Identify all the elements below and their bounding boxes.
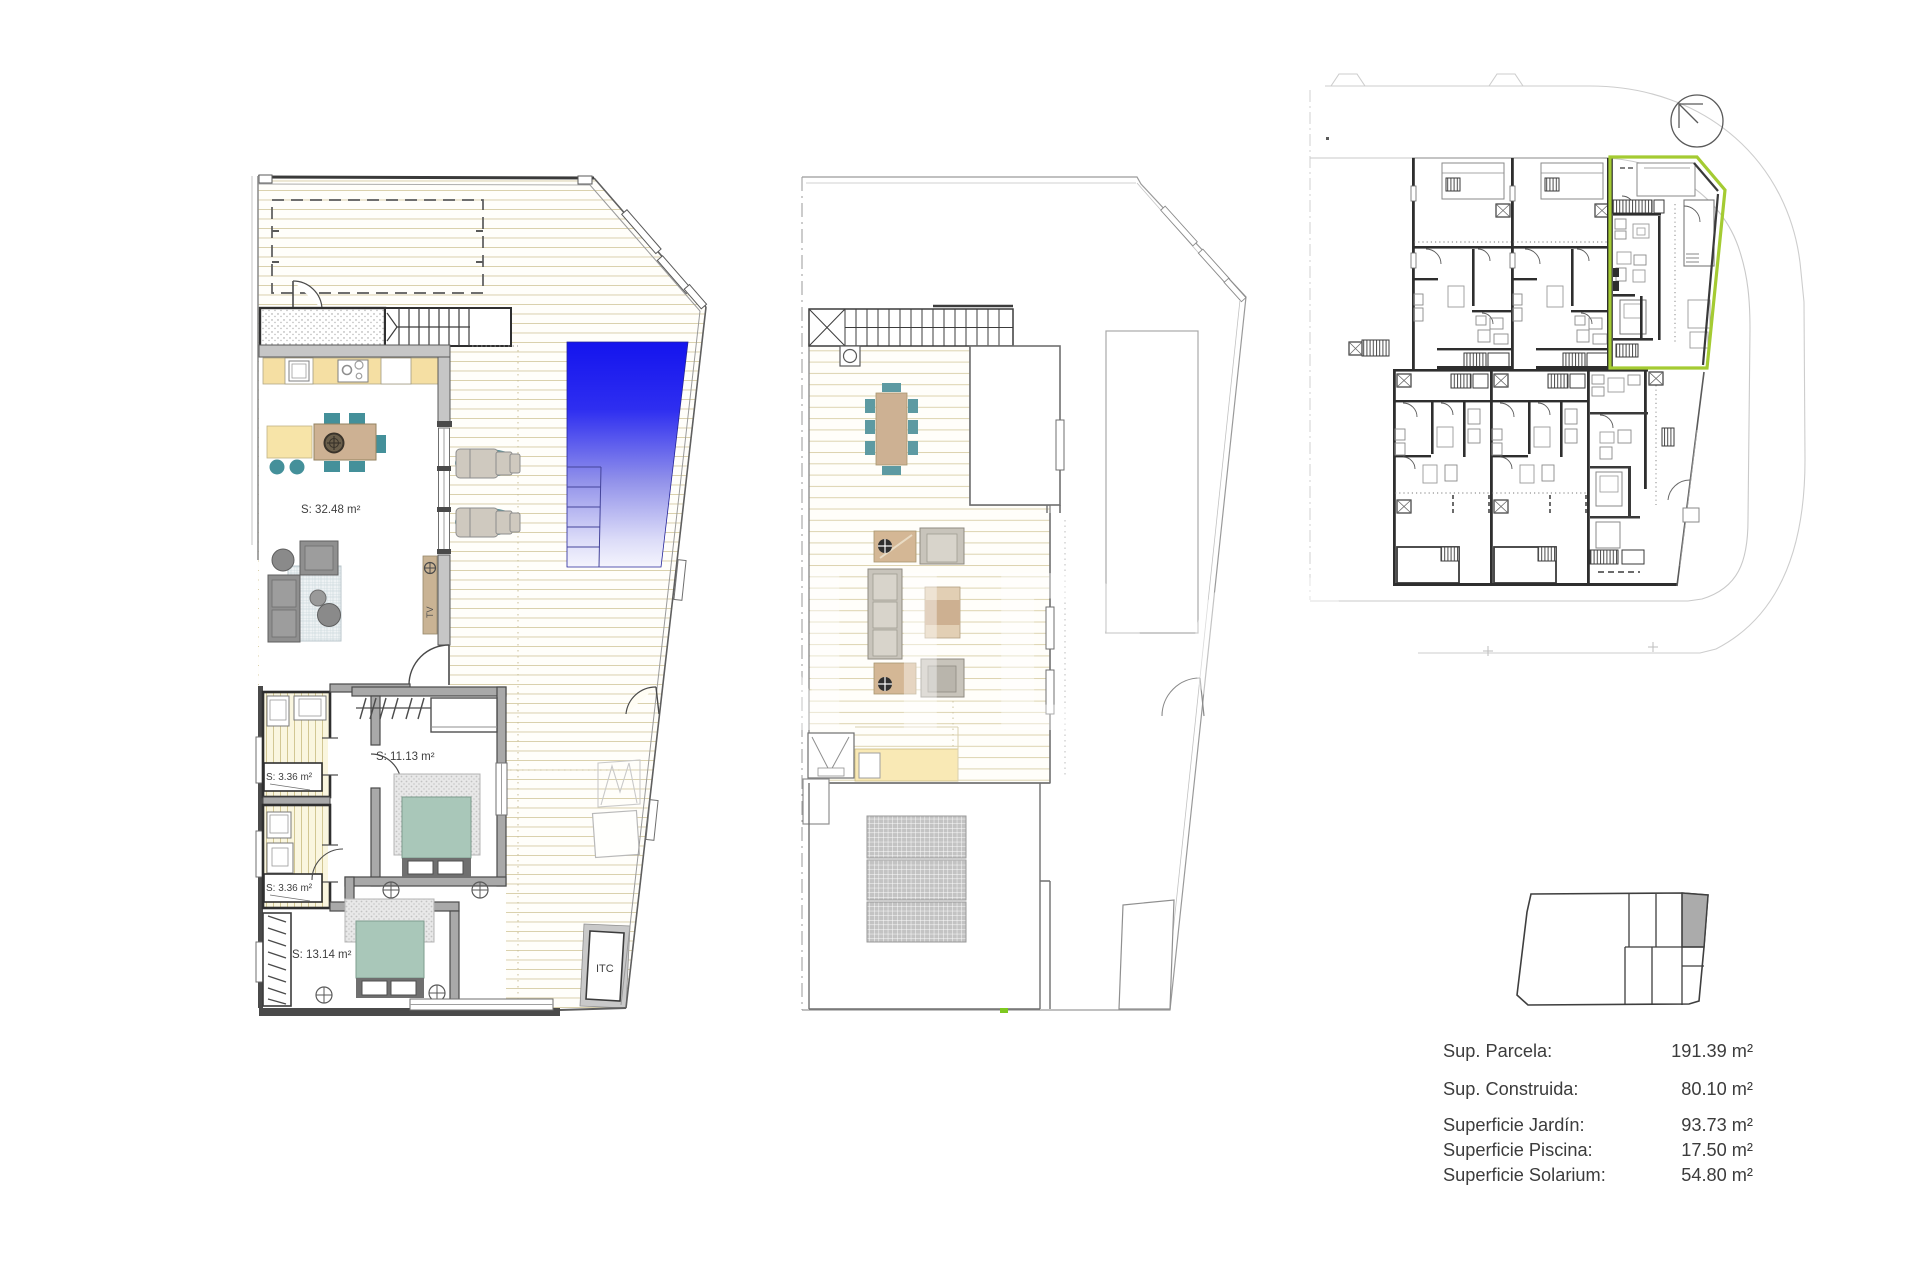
svg-text:93.73 m²: 93.73 m² — [1681, 1115, 1753, 1135]
svg-text:S: 32.48 m²: S: 32.48 m² — [301, 504, 361, 516]
svg-text:S: 13.14 m²: S: 13.14 m² — [292, 949, 352, 961]
svg-text:17.50 m²: 17.50 m² — [1681, 1140, 1753, 1160]
svg-text:Sup. Parcela:: Sup. Parcela: — [1443, 1041, 1552, 1061]
svg-text:S: 3.36 m²: S: 3.36 m² — [266, 772, 313, 783]
svg-text:54.80 m²: 54.80 m² — [1681, 1165, 1753, 1185]
svg-text:Superficie Piscina:: Superficie Piscina: — [1443, 1140, 1593, 1160]
svg-text:191.39 m²: 191.39 m² — [1671, 1041, 1753, 1061]
svg-text:Superficie Jardín:: Superficie Jardín: — [1443, 1115, 1585, 1135]
svg-text:S: 3.36 m²: S: 3.36 m² — [266, 883, 313, 894]
svg-text:TV: TV — [425, 606, 435, 618]
svg-text:Sup. Construida:: Sup. Construida: — [1443, 1079, 1578, 1099]
svg-text:NIDO: NIDO — [690, 525, 1396, 779]
svg-text:Superficie Solarium:: Superficie Solarium: — [1443, 1165, 1606, 1185]
svg-text:S: 11.13 m²: S: 11.13 m² — [376, 751, 435, 763]
svg-text:ITC: ITC — [596, 963, 614, 975]
svg-text:80.10 m²: 80.10 m² — [1681, 1079, 1753, 1099]
